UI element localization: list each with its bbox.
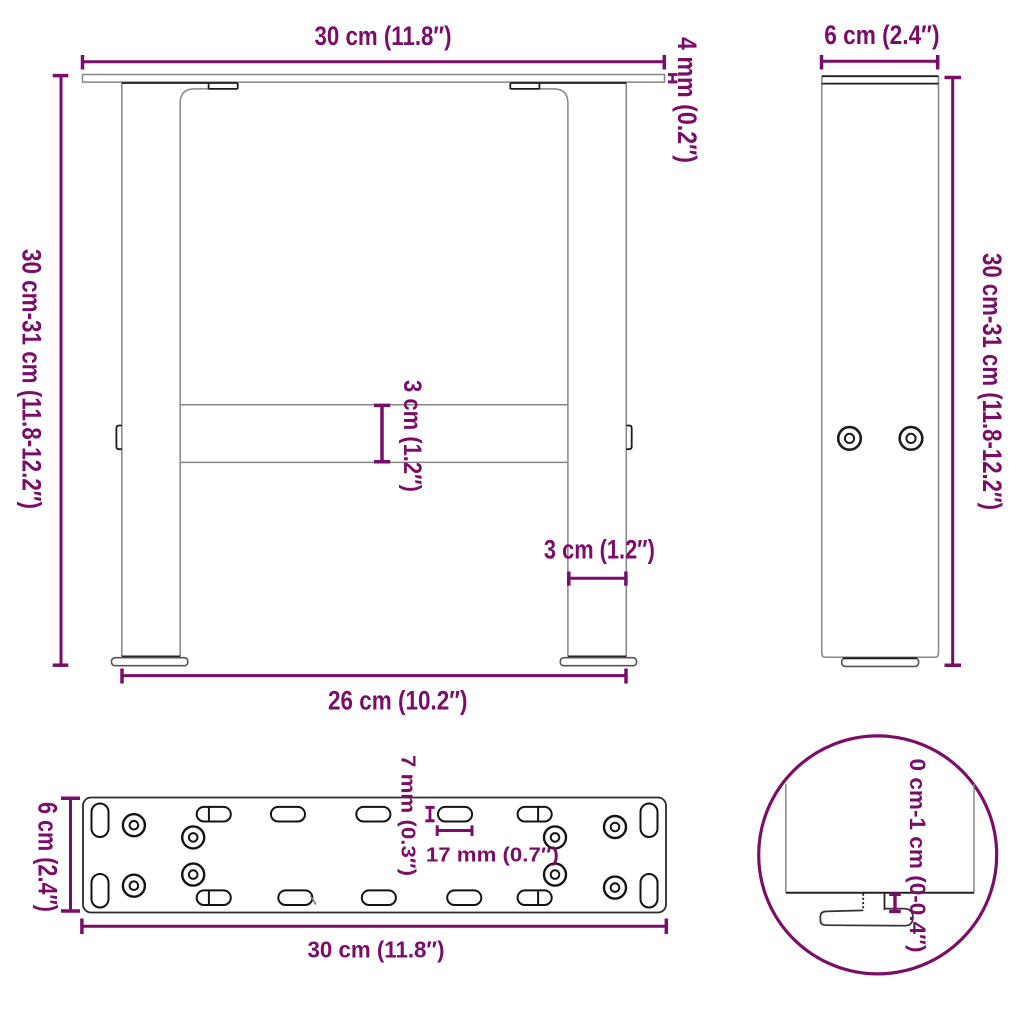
svg-text:30 cm-31 cm (11.8-12.2″): 30 cm-31 cm (11.8-12.2″): [17, 249, 47, 509]
svg-text:3 cm (1.2″): 3 cm (1.2″): [544, 535, 655, 565]
svg-text:6 cm (2.4″): 6 cm (2.4″): [824, 20, 939, 50]
svg-text:4 mm (0.2″): 4 mm (0.2″): [672, 37, 702, 163]
svg-text:0 cm-1 cm (0-0.4″): 0 cm-1 cm (0-0.4″): [905, 759, 930, 953]
svg-text:26 cm (10.2″): 26 cm (10.2″): [328, 686, 468, 716]
svg-text:30 cm-31 cm (11.8-12.2″): 30 cm-31 cm (11.8-12.2″): [977, 253, 1007, 510]
svg-text:17 mm (0.7″): 17 mm (0.7″): [426, 845, 559, 867]
svg-text:7 mm (0.3″): 7 mm (0.3″): [397, 755, 419, 876]
svg-text:30 cm (11.8″): 30 cm (11.8″): [315, 21, 452, 51]
svg-text:30 cm (11.8″): 30 cm (11.8″): [308, 936, 445, 962]
svg-text:6 cm (2.4″): 6 cm (2.4″): [33, 802, 63, 912]
svg-text:3 cm (1.2″): 3 cm (1.2″): [398, 380, 426, 492]
